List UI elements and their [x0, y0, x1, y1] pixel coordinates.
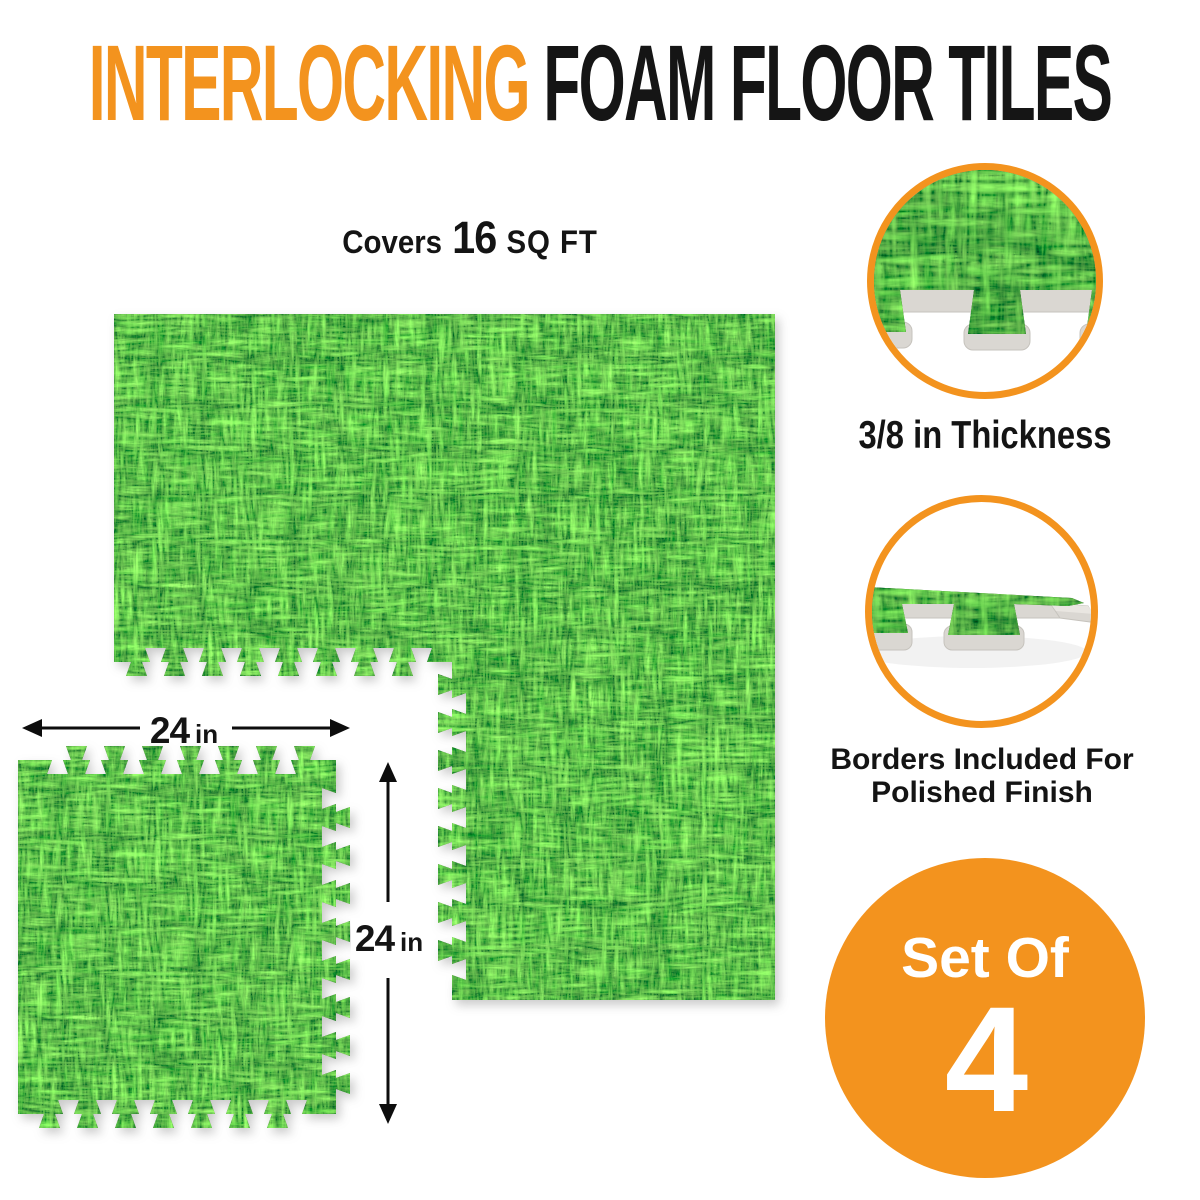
arrow-head-up-icon	[379, 762, 397, 782]
width-dimension-label: 24 in	[150, 710, 218, 752]
thickness-caption: 3/8 in Thickness	[858, 414, 1111, 458]
borders-caption-line2: Polished Finish	[830, 776, 1133, 809]
width-unit: in	[195, 719, 218, 750]
page-title-text: INTERLOCKINGFOAM FLOOR TILES	[89, 29, 1112, 137]
height-value: 24	[355, 918, 394, 960]
arrow-head-down-icon	[379, 1104, 397, 1124]
width-value: 24	[150, 710, 189, 752]
coverage-value: 16	[452, 212, 496, 264]
height-dimension-label: 24 in	[351, 918, 427, 960]
grass-texture-single-tile	[18, 746, 358, 1128]
borders-caption: Borders Included For Polished Finish	[830, 743, 1133, 809]
grass-tile-single	[18, 746, 358, 1128]
product-image-root: INTERLOCKINGFOAM FLOOR TILES Covers 16 S…	[0, 0, 1200, 1200]
coverage-unit: SQ FT	[506, 224, 597, 261]
thickness-detail-image	[874, 170, 1096, 392]
coverage-prefix: Covers	[342, 224, 442, 261]
foam-tab-foot	[1080, 324, 1096, 350]
coverage-label: Covers 16 SQ FT	[342, 212, 598, 264]
set-count-badge: Set Of 4	[825, 858, 1145, 1178]
arrow-head-right-icon	[330, 719, 350, 737]
title-highlight: INTERLOCKING	[89, 22, 529, 143]
borders-detail-circle	[865, 495, 1098, 728]
page-title: INTERLOCKINGFOAM FLOOR TILES	[0, 29, 1200, 137]
borders-caption-line1: Borders Included For	[830, 743, 1133, 776]
borders-detail-image	[872, 502, 1091, 721]
height-unit: in	[400, 927, 423, 958]
thickness-detail-circle	[867, 163, 1103, 399]
badge-count: 4	[945, 994, 1025, 1124]
arrow-head-left-icon	[22, 719, 42, 737]
title-rest: FOAM FLOOR TILES	[543, 22, 1111, 143]
